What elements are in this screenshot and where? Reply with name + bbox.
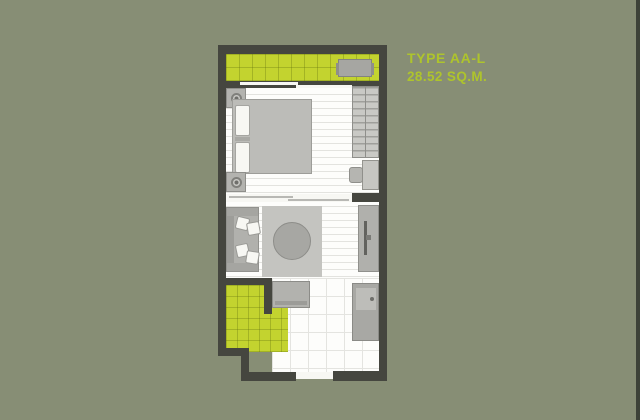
faucet-icon <box>370 297 374 301</box>
headboard <box>235 137 250 141</box>
wall <box>379 45 387 381</box>
kitchen-counter <box>352 283 379 341</box>
unit-area-label: 28.52 SQ.M. <box>407 69 487 84</box>
tv-icon <box>364 221 367 255</box>
stool <box>349 167 363 183</box>
lamp-icon <box>231 177 242 188</box>
wall <box>333 371 383 381</box>
unit-type-label: TYPE AA-L <box>407 50 487 66</box>
nightstand <box>226 172 246 192</box>
cushion <box>245 250 260 265</box>
sliding-panel <box>288 199 349 201</box>
balcony-sliding-door <box>296 85 352 88</box>
wall <box>352 193 379 202</box>
wall <box>241 372 296 381</box>
bed <box>232 99 312 174</box>
sofa <box>226 207 259 272</box>
cabinet <box>272 281 310 308</box>
wall <box>218 45 226 356</box>
wardrobe <box>352 86 379 158</box>
wall <box>218 278 272 285</box>
wall <box>264 285 272 314</box>
wall <box>218 45 387 54</box>
bedroom-sliding-partition <box>226 194 352 202</box>
sofa-armrest <box>227 208 258 216</box>
sofa-back <box>227 208 234 271</box>
right-edge-strip <box>636 0 640 420</box>
round-coffee-table <box>273 222 311 260</box>
background: { "title": { "type_label": "TYPE AA-L", … <box>0 0 640 420</box>
pillow <box>235 142 250 173</box>
balcony-sliding-door <box>240 82 298 85</box>
floorplan <box>218 45 387 381</box>
desk <box>362 160 379 190</box>
kitchen-sink <box>356 288 376 310</box>
entry-threshold <box>296 372 333 379</box>
pillow <box>235 105 250 136</box>
tv-console <box>358 205 379 272</box>
unit-title-block: TYPE AA-L 28.52 SQ.M. <box>407 50 487 84</box>
sliding-panel <box>229 196 293 198</box>
ac-unit <box>338 59 372 77</box>
cushion <box>246 221 261 236</box>
